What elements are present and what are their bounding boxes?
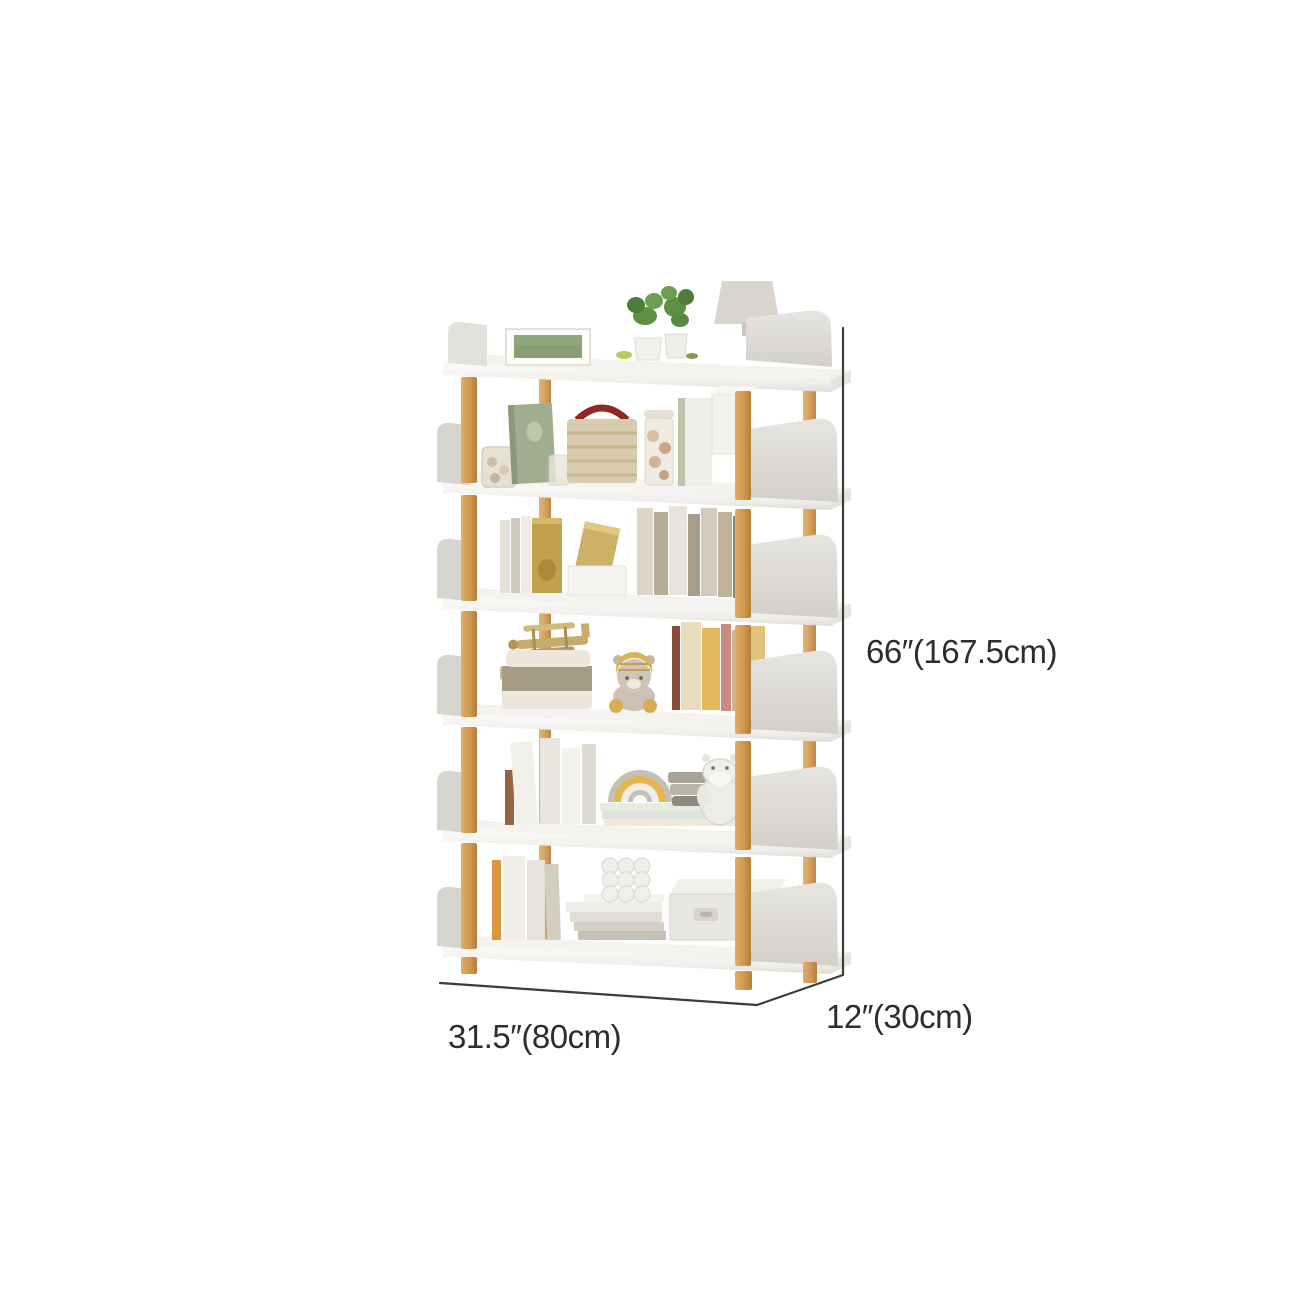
potted-plant (616, 286, 698, 360)
white-box (568, 566, 626, 595)
rainbow-toy (608, 770, 672, 802)
shelf-5-items (505, 738, 740, 826)
top-right-rail (746, 311, 832, 367)
book-row (637, 506, 745, 598)
magazine-file (678, 398, 712, 486)
width-dimension-label: 31.5″(80cm) (448, 1018, 621, 1056)
bubble-candle (602, 858, 650, 902)
shelf-3-items (500, 506, 745, 598)
top-shelf-items (506, 281, 780, 365)
hippo-plush (697, 754, 740, 825)
storage-case (500, 650, 592, 709)
book-stack (566, 894, 666, 940)
candy-jar (644, 410, 674, 485)
standing-books (492, 856, 561, 940)
gold-book (532, 518, 562, 593)
teddy-bear (609, 652, 657, 713)
standing-books (500, 516, 531, 593)
woven-basket-bag (567, 408, 637, 483)
top-left-rail (448, 322, 487, 366)
shelf-2-items (482, 386, 756, 487)
product-dimension-image: 66″(167.5cm) 31.5″(80cm) 12″(30cm) (0, 0, 1300, 1300)
height-dimension-label: 66″(167.5cm) (866, 633, 1057, 671)
glass-cup (549, 455, 569, 485)
picture-frame (506, 329, 590, 365)
depth-dimension-label: 12″(30cm) (826, 998, 973, 1036)
white-books (505, 738, 596, 825)
bookshelf-illustration (0, 0, 1300, 1300)
